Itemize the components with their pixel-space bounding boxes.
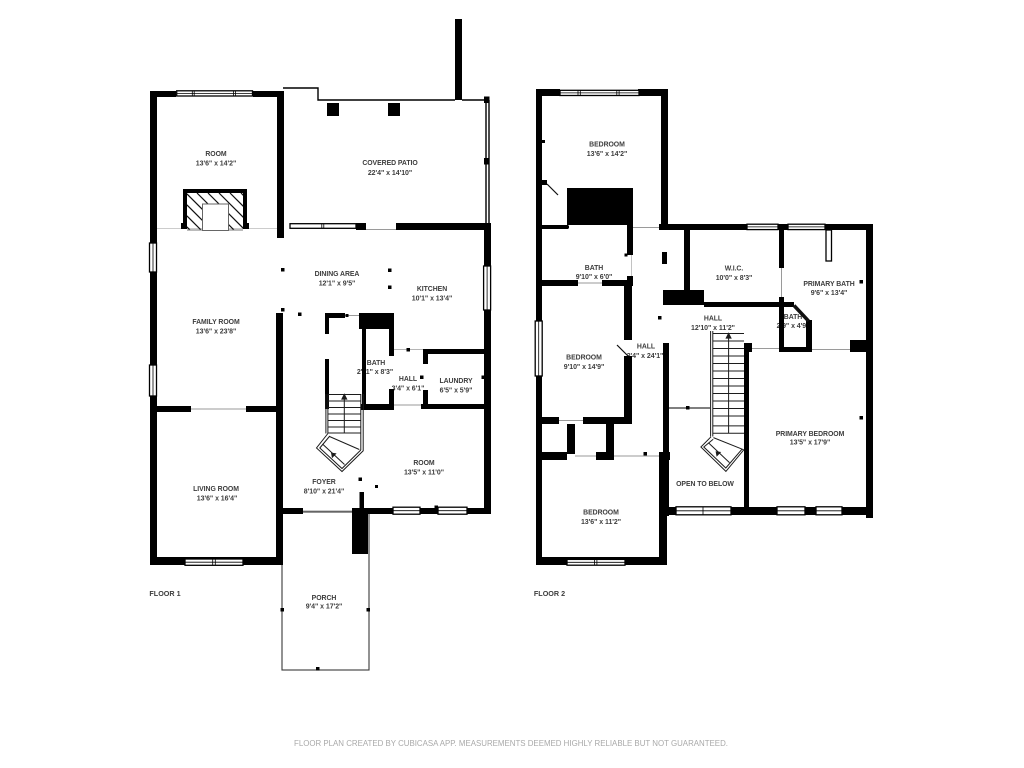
svg-text:12'1" x 9'5": 12'1" x 9'5" [319,281,356,288]
svg-text:22'4" x 14'10": 22'4" x 14'10" [368,170,412,177]
svg-text:HALL: HALL [704,316,722,323]
svg-text:12'10" x 11'2": 12'10" x 11'2" [691,325,735,332]
svg-text:HALL: HALL [399,376,417,383]
svg-text:HALL: HALL [637,344,655,351]
svg-text:DINING AREA: DINING AREA [315,271,360,278]
svg-text:BATH: BATH [367,360,385,367]
svg-text:FLOOR 1: FLOOR 1 [149,589,180,598]
svg-text:LAUNDRY: LAUNDRY [439,378,473,385]
svg-text:FLOOR PLAN CREATED BY CUBICASA: FLOOR PLAN CREATED BY CUBICASA APP. MEAS… [294,739,728,748]
svg-text:PRIMARY BEDROOM: PRIMARY BEDROOM [776,431,845,438]
svg-text:BEDROOM: BEDROOM [589,142,625,149]
svg-text:PRIMARY BATH: PRIMARY BATH [803,281,854,288]
svg-text:FLOOR 2: FLOOR 2 [534,589,565,598]
svg-text:FAMILY ROOM: FAMILY ROOM [192,319,240,326]
svg-text:BEDROOM: BEDROOM [566,355,602,362]
svg-text:PORCH: PORCH [312,595,337,602]
svg-text:W.I.C.: W.I.C. [725,266,744,273]
svg-text:13'6" x 11'2": 13'6" x 11'2" [581,519,621,526]
svg-text:13'6" x 23'8": 13'6" x 23'8" [196,329,236,336]
svg-text:13'6" x 14'2": 13'6" x 14'2" [587,151,627,158]
svg-text:FOYER: FOYER [312,479,336,486]
svg-text:KITCHEN: KITCHEN [417,286,447,293]
svg-text:10'1" x 13'4": 10'1" x 13'4" [412,296,452,303]
svg-text:ROOM: ROOM [205,151,227,158]
svg-text:3'4" x 6'1": 3'4" x 6'1" [392,386,425,393]
svg-text:9'6" x 13'4": 9'6" x 13'4" [811,290,848,297]
svg-text:LIVING ROOM: LIVING ROOM [193,486,239,493]
svg-text:9'10" x 14'9": 9'10" x 14'9" [564,364,604,371]
svg-text:13'5" x 17'9": 13'5" x 17'9" [790,440,830,447]
svg-text:OPEN TO BELOW: OPEN TO BELOW [676,481,734,488]
svg-text:13'6" x 14'2": 13'6" x 14'2" [196,161,236,168]
svg-text:6'5" x 5'9": 6'5" x 5'9" [440,388,473,395]
svg-text:8'10" x 21'4": 8'10" x 21'4" [304,489,344,496]
svg-text:BATH: BATH [784,314,802,321]
svg-text:10'0" x 8'3": 10'0" x 8'3" [716,275,753,282]
svg-text:COVERED PATIO: COVERED PATIO [362,160,418,167]
svg-text:3'4" x 24'1": 3'4" x 24'1" [627,353,664,360]
svg-text:9'10" x 6'0": 9'10" x 6'0" [576,274,613,281]
svg-text:BATH: BATH [585,265,603,272]
svg-text:9'4" x 17'2": 9'4" x 17'2" [306,604,343,611]
svg-text:ROOM: ROOM [413,460,435,467]
svg-text:13'6" x 16'4": 13'6" x 16'4" [197,496,237,503]
svg-text:13'5" x 11'0": 13'5" x 11'0" [404,470,444,477]
svg-text:BEDROOM: BEDROOM [583,510,619,517]
